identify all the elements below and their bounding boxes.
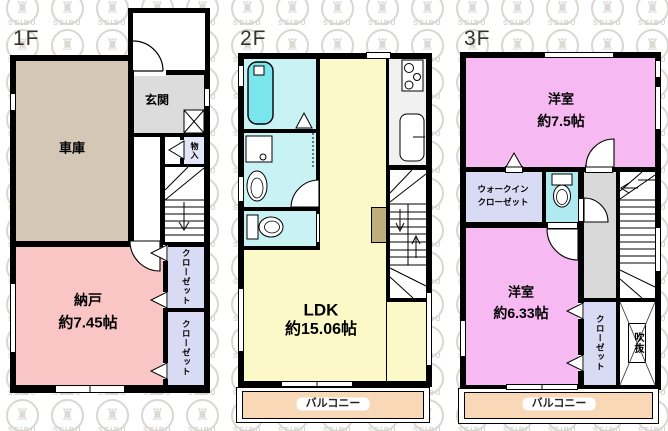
- garage-label: 車庫: [59, 142, 85, 155]
- watermark-logo: ♜SEIBU: [452, 0, 493, 27]
- f2-washroom: [244, 133, 316, 207]
- watermark-brand-text: SEIBU: [632, 20, 668, 27]
- f2-ldk-room-right: [387, 302, 426, 381]
- f2-kitchen: [389, 59, 426, 165]
- watermark-brand-text: SEIBU: [542, 427, 583, 431]
- watermark-logo: ♜SEIBU: [317, 0, 358, 27]
- watermark-brand-text: SEIBU: [497, 20, 538, 27]
- cabinet-label: 物入: [190, 142, 198, 160]
- watermark-logo: ♜SEIBU: [542, 0, 583, 27]
- watermark-brand-text: SEIBU: [227, 20, 268, 27]
- watermark-logo: ♜SEIBU: [92, 399, 133, 431]
- f1-hall: [134, 137, 160, 242]
- floor-1-label: 1F: [13, 28, 40, 49]
- watermark-brand-text: SEIBU: [317, 20, 358, 27]
- watermark-brand-text: SEIBU: [407, 20, 448, 27]
- window: [238, 288, 244, 352]
- f3-staircase: [620, 172, 655, 298]
- window: [460, 320, 466, 357]
- ldk-size-label: 約15.06帖: [285, 322, 357, 338]
- watermark-logo: ♜SEIBU: [47, 399, 88, 431]
- watermark-brand-text: SEIBU: [452, 20, 493, 27]
- bedroom-a-label: 洋室: [548, 93, 574, 106]
- watermark-brand-text: SEIBU: [47, 20, 88, 27]
- closet-lower-label: クローゼット: [182, 320, 191, 377]
- watermark-brand-text: SEIBU: [362, 20, 403, 27]
- watermark-brand-text: SEIBU: [407, 427, 448, 431]
- watermark-brand-text: SEIBU: [2, 20, 43, 27]
- watermark-logo: ♜SEIBU: [272, 0, 313, 27]
- f3-toilet-door-gap: [578, 198, 584, 222]
- watermark-logo: ♜SEIBU: [92, 0, 133, 27]
- bedroom-b-label: 洋室: [508, 286, 534, 299]
- window: [238, 65, 244, 87]
- bedroom-b-size-label: 約6.33帖: [493, 306, 548, 320]
- f3-bedroom-a-door-gap: [585, 165, 613, 173]
- closet-upper-label: クローゼット: [182, 249, 191, 306]
- window: [238, 176, 244, 202]
- watermark-logo: ♜SEIBU: [587, 0, 628, 27]
- f1-entry-door-gap: [134, 70, 166, 76]
- floor-2-label: 2F: [240, 28, 267, 49]
- window: [10, 93, 16, 111]
- window: [366, 52, 391, 59]
- watermark-brand-text: SEIBU: [632, 427, 668, 431]
- watermark-logo: ♜SEIBU: [182, 399, 223, 431]
- window: [426, 292, 432, 366]
- floor-3-label: 3F: [464, 28, 491, 49]
- watermark-brand-text: SEIBU: [362, 427, 403, 431]
- window: [10, 283, 16, 353]
- f1-staircase: [165, 167, 204, 242]
- f2-toilet-door-gap: [316, 213, 320, 243]
- watermark-logo: ♜SEIBU: [2, 399, 43, 431]
- watermark-logo: ♜SEIBU: [497, 0, 538, 27]
- f1-stair-landing: [165, 137, 180, 164]
- balcony-door: [281, 381, 353, 387]
- window: [655, 86, 661, 130]
- watermark-brand-text: SEIBU: [92, 427, 133, 431]
- window: [544, 52, 614, 58]
- f3-closet-label: クローゼット: [596, 315, 605, 372]
- watermark-logo: ♜SEIBU: [632, 0, 668, 27]
- f1-porch: [133, 13, 205, 70]
- f3-wic-door-gap: [505, 166, 523, 173]
- watermark-brand-text: SEIBU: [542, 20, 583, 27]
- storage-room-label: 納戸: [74, 293, 102, 307]
- watermark-logo: ♜SEIBU: [2, 0, 43, 27]
- f3-hallway: [584, 172, 616, 298]
- watermark-brand-text: SEIBU: [272, 427, 313, 431]
- watermark-brand-text: SEIBU: [497, 427, 538, 431]
- watermark-brand-text: SEIBU: [2, 427, 43, 431]
- window: [204, 88, 210, 107]
- entrance-label: 玄関: [145, 94, 169, 106]
- watermark-brand-text: SEIBU: [92, 20, 133, 27]
- watermark-brand-text: SEIBU: [587, 20, 628, 27]
- f2-toilet-room: [244, 211, 316, 246]
- watermark-logo: ♜SEIBU: [407, 0, 448, 27]
- watermark-logo: ♜SEIBU: [137, 399, 178, 431]
- f3-balcony-label: バルコニー: [523, 398, 596, 411]
- watermark-logo: ♜SEIBU: [362, 0, 403, 27]
- watermark-brand-text: SEIBU: [272, 20, 313, 27]
- watermark-brand-text: SEIBU: [182, 427, 223, 431]
- window: [655, 227, 661, 272]
- f3-toilet-room: [546, 172, 578, 222]
- watermark-brand-text: SEIBU: [227, 427, 268, 431]
- f3-bedroom-b-door-gap: [547, 222, 578, 229]
- bedroom-a-size-label: 約7.5帖: [537, 114, 584, 128]
- void-label: 吹抜: [632, 332, 642, 354]
- f2-staircase: [390, 170, 426, 298]
- watermark-brand-text: SEIBU: [452, 427, 493, 431]
- window: [55, 385, 125, 393]
- watermark-brand-text: SEIBU: [317, 427, 358, 431]
- watermark-brand-text: SEIBU: [587, 427, 628, 431]
- watermark-logo: ♜SEIBU: [47, 0, 88, 27]
- wic-label-line1: ウォークイン: [477, 185, 528, 194]
- f2-balcony-label: バルコニー: [297, 398, 370, 411]
- f2-bathroom: [244, 59, 316, 129]
- balcony-door: [506, 384, 578, 390]
- watermark-brand-text: SEIBU: [47, 427, 88, 431]
- wic-label-line2: クローゼット: [477, 198, 528, 207]
- f2-counter-board: [371, 207, 387, 243]
- ldk-label: LDK: [304, 302, 339, 319]
- watermark-logo: ♜SEIBU: [227, 0, 268, 27]
- floorplan-canvas: ♜SEIBU♜SEIBU♜SEIBU♜SEIBU♜SEIBU♜SEIBU♜SEI…: [0, 0, 668, 431]
- storage-room-size-label: 約7.45帖: [58, 316, 117, 331]
- window: [655, 60, 661, 78]
- watermark-brand-text: SEIBU: [137, 427, 178, 431]
